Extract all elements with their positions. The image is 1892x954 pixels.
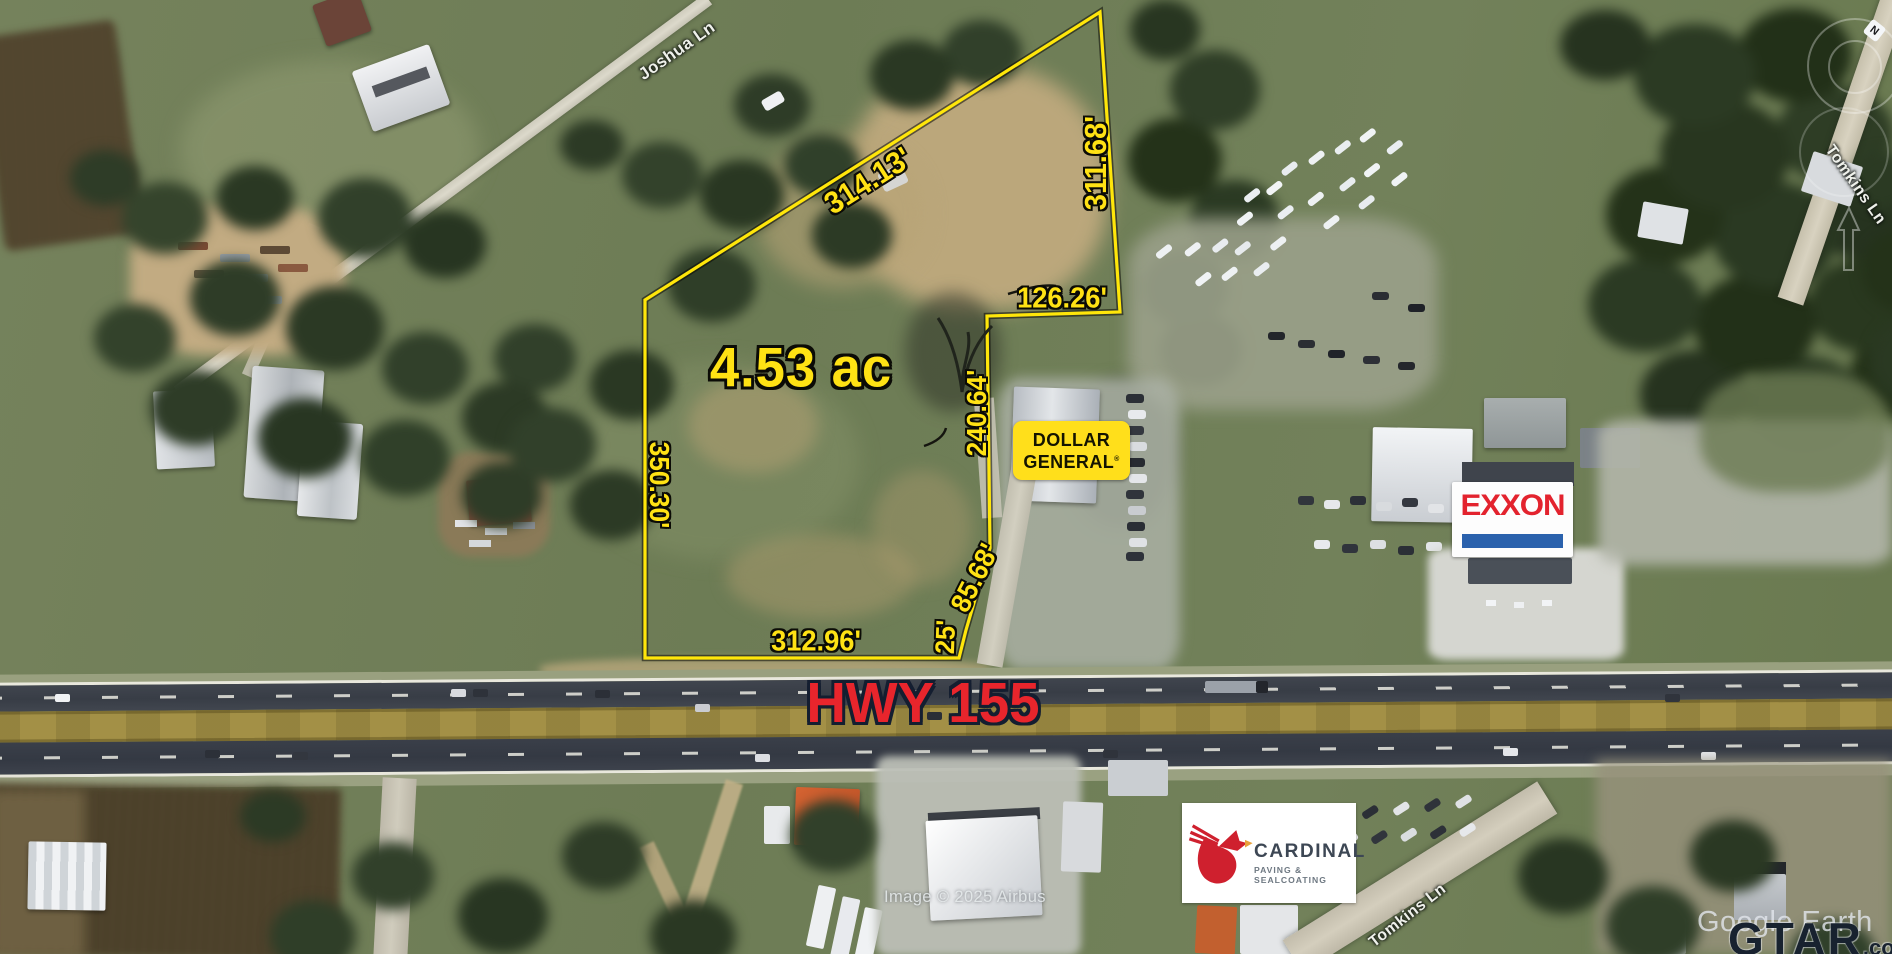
cardinal-logo: CARDINAL PAVING & SEALCOATING [1182, 803, 1356, 903]
dim-southeast-short: 25' [930, 619, 962, 654]
dim-northeast: 311.68' [1078, 116, 1114, 210]
exxon-blue-stripe [1462, 534, 1563, 548]
dim-west: 350.30' [643, 442, 675, 529]
dim-east-jog: 126.26' [1017, 283, 1107, 316]
site-watermark: GTAR .com [1728, 912, 1892, 954]
dollar-general-sign: DOLLAR GENERAL® [1013, 421, 1130, 480]
dim-east: 240.64' [961, 370, 993, 457]
exxon-wordmark: EXXON [1450, 489, 1576, 523]
navigation-arrow-icon [1838, 208, 1859, 270]
imagery-attribution: Image © 2025 Airbus [884, 888, 1046, 907]
compass-ring-inner [1828, 40, 1882, 94]
compass-north-label: N [1868, 23, 1882, 37]
cardinal-bird-icon [1188, 817, 1254, 889]
exxon-sign: EXXON [1452, 482, 1573, 557]
cardinal-tagline: PAVING & SEALCOATING [1254, 865, 1356, 885]
cardinal-name: CARDINAL [1254, 841, 1366, 863]
dim-south: 312.96' [771, 626, 861, 659]
dollar-general-line2: GENERAL [1023, 452, 1114, 472]
annotation-overlay [0, 0, 1892, 954]
compass-ring-lower [1799, 107, 1889, 197]
site-watermark-suffix: .com [1863, 935, 1892, 954]
parcel-area-label: 4.53 ac [710, 335, 892, 400]
site-watermark-name: GTAR [1728, 912, 1863, 954]
highway-155-label: HWY 155 [806, 670, 1039, 736]
satellite-map: DOLLAR GENERAL® EXXON CARDINAL PAVING & … [0, 0, 1892, 954]
registered-mark: ® [1114, 456, 1120, 463]
dollar-general-line1: DOLLAR [1033, 430, 1110, 450]
